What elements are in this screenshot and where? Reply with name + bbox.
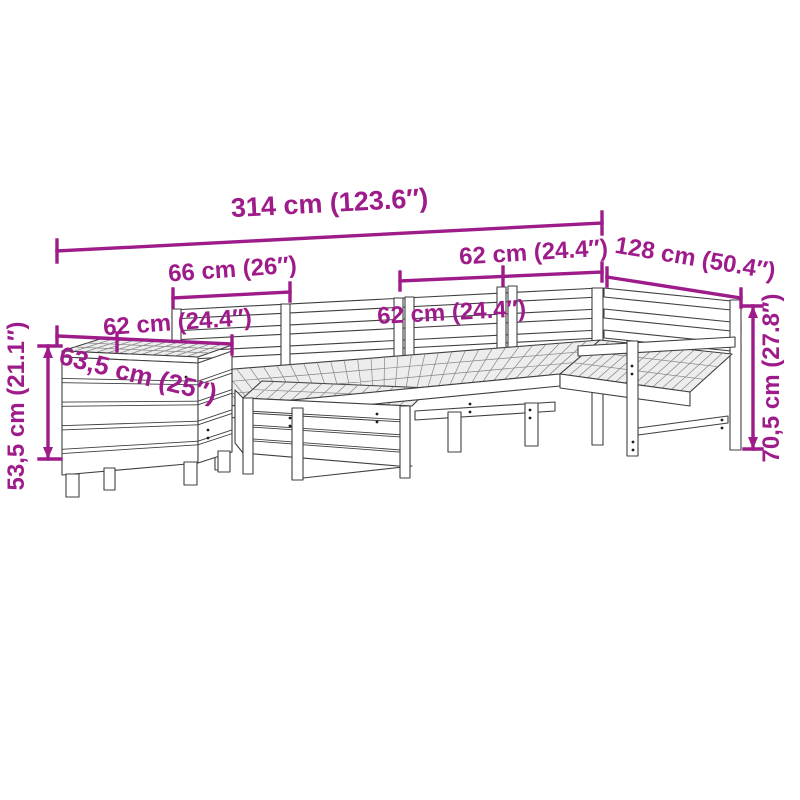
dim-left-section: 66 cm (26″)	[167, 252, 297, 307]
dim-box-height: 53,5 cm (21.1″)	[3, 322, 61, 491]
dim-right-depth-label: 128 cm (50.4″)	[613, 232, 777, 285]
dim-sofa-height-label: 70,5 cm (27.8″)	[758, 294, 785, 463]
dim-sofa-height: 70,5 cm (27.8″)	[744, 294, 785, 463]
dim-overall-width-label: 314 cm (123.6″)	[230, 183, 429, 223]
dim-left-section-label: 66 cm (26″)	[167, 252, 297, 288]
product-dimension-diagram: 314 cm (123.6″) 66 cm (26″) 62 cm (24.4″…	[0, 0, 800, 800]
dim-box-height-label: 53,5 cm (21.1″)	[3, 322, 30, 491]
dim-right-back-section-label: 62 cm (24.4″)	[458, 234, 608, 270]
garden-sofa-set-drawing: 314 cm (123.6″) 66 cm (26″) 62 cm (24.4″…	[0, 0, 800, 800]
